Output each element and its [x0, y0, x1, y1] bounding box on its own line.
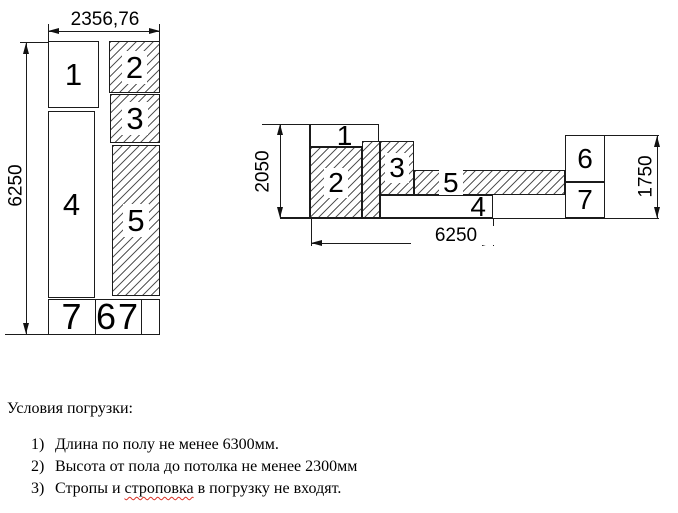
side-view-box-4: 4 — [380, 195, 493, 218]
note-item-3: 3) — [31, 479, 44, 498]
box-label: 5 — [439, 168, 463, 198]
box-label: 4 — [63, 189, 80, 220]
dim-arrow-icon — [23, 323, 29, 334]
dimension-line — [48, 31, 160, 32]
side-view-hatched-strip — [362, 141, 380, 218]
note-number: 2) — [31, 458, 44, 475]
dim-arrow-icon — [23, 43, 29, 54]
top-view-box-6: 6 — [95, 299, 117, 335]
dim-arrow-icon — [277, 124, 283, 135]
notes-heading: Условия погрузки: — [7, 399, 133, 418]
note-item-2-text: Высота от пола до потолка не менее 2300м… — [55, 457, 357, 476]
box-label: 2 — [324, 168, 348, 198]
dim-arrow-icon — [654, 136, 660, 147]
dim-arrow-icon — [48, 28, 59, 34]
box-label: 3 — [122, 102, 147, 135]
box-label: 1 — [65, 59, 82, 90]
extension-line — [605, 135, 659, 136]
box-label: 1 — [337, 122, 353, 150]
note-text: в погрузку не входят. — [194, 480, 342, 497]
note-item-1: 1) — [31, 435, 44, 454]
box-label: 2 — [122, 51, 147, 84]
note-item-3-text: Стропы и строповка в погрузку не входят. — [55, 479, 341, 498]
top-view-width-dimension: 2356,76 — [60, 10, 150, 29]
dimension-line — [657, 136, 658, 218]
top-view-height-dimension: 6250 — [7, 146, 26, 226]
side-view-end-box — [280, 124, 310, 218]
extension-line — [48, 24, 49, 41]
box-label: 6 — [96, 299, 116, 335]
note-text: Стропы и — [55, 480, 125, 497]
note-number: 1) — [31, 436, 44, 453]
top-view-box-1: 1 — [48, 41, 99, 108]
top-view-box-7-right: 7 — [116, 299, 140, 335]
box-label: 3 — [385, 153, 409, 183]
side-view-box-2: 2 — [310, 147, 362, 218]
side-view-box-5: 5 — [414, 170, 565, 195]
side-view-left-height-dimension: 2050 — [254, 132, 273, 212]
row-divider — [141, 299, 142, 335]
extension-line — [5, 334, 50, 335]
side-view-box-7: 7 — [565, 182, 605, 218]
side-view-right-height-dimension: 1750 — [637, 137, 656, 217]
box-label: 5 — [123, 204, 148, 237]
extension-line — [20, 42, 48, 43]
dim-arrow-icon — [311, 240, 322, 246]
extension-line — [159, 24, 160, 41]
note-item-1-text: Длина по полу не менее 6300мм. — [55, 435, 279, 454]
misspelled-word: строповка — [125, 480, 194, 497]
note-text: Высота от пола до потолка не менее 2300м… — [55, 458, 357, 475]
top-view-box-4: 4 — [48, 111, 95, 298]
side-view-box-6: 6 — [565, 135, 605, 182]
note-text: Длина по полу не менее 6300мм. — [55, 436, 279, 453]
box-label: 4 — [470, 193, 486, 221]
box-label: 6 — [577, 145, 593, 173]
dim-arrow-icon — [654, 207, 660, 218]
top-view-box-5: 5 — [112, 145, 160, 296]
note-item-2: 2) — [31, 457, 44, 476]
side-view-length-dimension: 6250 — [411, 226, 501, 245]
dim-arrow-icon — [277, 207, 283, 218]
top-view-box-2: 2 — [109, 41, 160, 93]
top-view-box-7-left: 7 — [48, 299, 95, 335]
dimension-line — [26, 43, 27, 334]
note-number: 3) — [31, 480, 44, 497]
box-label: 7 — [61, 299, 81, 335]
box-label: 7 — [118, 299, 138, 335]
box-label: 7 — [577, 186, 593, 214]
top-view-box-3: 3 — [110, 94, 160, 143]
side-view-box-3: 3 — [380, 141, 414, 195]
